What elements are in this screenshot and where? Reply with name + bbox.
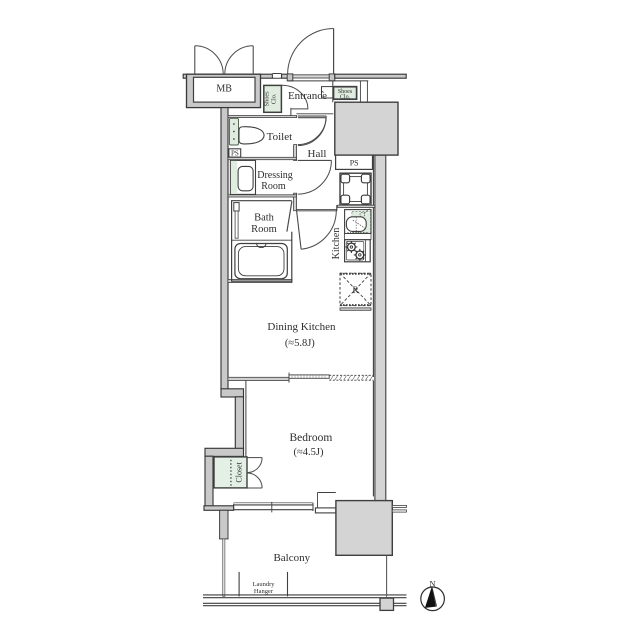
svg-text:Kitchen: Kitchen [331,228,342,260]
svg-text:MB: MB [216,84,232,95]
svg-text:Laundry: Laundry [252,581,275,588]
svg-text:Bedroom: Bedroom [289,432,332,444]
svg-text:Room: Room [261,181,286,192]
svg-text:Dining Kitchen: Dining Kitchen [267,321,336,333]
svg-text:Toilet: Toilet [267,131,293,143]
svg-text:PS: PS [231,150,239,158]
svg-text:Closet: Closet [235,461,244,482]
svg-text:(≈5.8J): (≈5.8J) [285,338,315,349]
svg-text:Room: Room [251,224,277,235]
svg-text:Dressing: Dressing [257,170,293,181]
svg-text:PS: PS [350,158,359,167]
svg-text:Clo.: Clo. [340,95,351,101]
svg-text:Clo.: Clo. [271,93,278,104]
svg-text:Hall: Hall [308,148,327,160]
svg-text:(≈4.5J): (≈4.5J) [294,447,324,458]
svg-text:N: N [429,578,435,588]
svg-text:Balcony: Balcony [273,552,310,564]
svg-text:Entrance: Entrance [288,90,327,102]
svg-text:R: R [352,286,359,296]
svg-text:Bath: Bath [254,212,275,223]
svg-text:Hanger: Hanger [254,588,274,595]
